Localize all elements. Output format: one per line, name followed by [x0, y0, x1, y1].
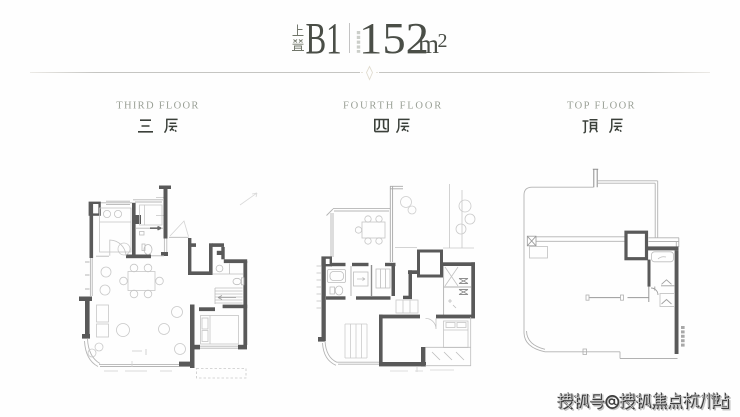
svg-text:B1: B1	[306, 15, 342, 64]
svg-text:m: m	[418, 29, 439, 59]
svg-text:TOP FLOOR: TOP FLOOR	[567, 100, 636, 111]
svg-text:2: 2	[438, 30, 448, 52]
svg-text:FOURTH FLOOR: FOURTH FLOOR	[343, 100, 443, 111]
svg-text:THIRD FLOOR: THIRD FLOOR	[116, 100, 199, 111]
